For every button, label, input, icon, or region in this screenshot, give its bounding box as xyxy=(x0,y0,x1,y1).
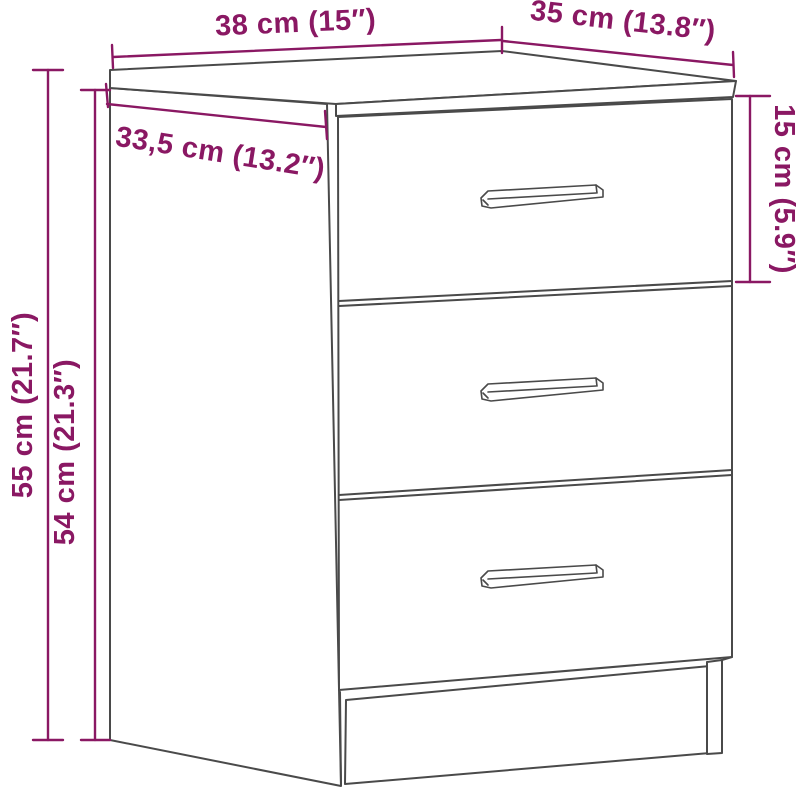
dim-label-drawer-height: 15 cm (5.9″) xyxy=(768,104,800,274)
dim-label-total-height: 55 cm (21.7″) xyxy=(7,312,39,498)
diagram-canvas: 38 cm (15″) 35 cm (13.8″) 33,5 cm (13.2″… xyxy=(0,0,800,800)
dim-label-side-height: 54 cm (21.3″) xyxy=(49,359,81,545)
dim-label-top-width: 38 cm (15″) xyxy=(214,4,376,43)
cabinet-side-panel xyxy=(110,88,341,786)
cabinet-right-leg xyxy=(707,660,722,754)
product-dimension-diagram: 38 cm (15″) 35 cm (13.8″) 33,5 cm (13.2″… xyxy=(0,0,800,800)
dim-tick xyxy=(112,45,113,68)
dim-tick xyxy=(733,52,734,77)
dim-label-top-depth: 35 cm (13.8″) xyxy=(529,0,718,48)
cabinet-left-leg-edge xyxy=(340,692,341,785)
